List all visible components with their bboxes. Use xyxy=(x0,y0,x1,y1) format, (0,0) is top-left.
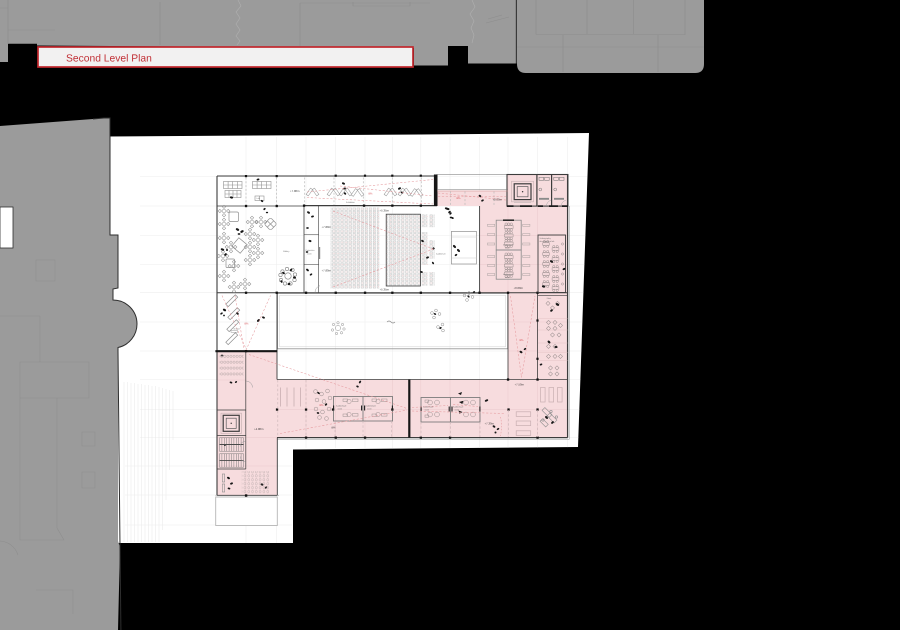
svg-text:+7.50m: +7.50m xyxy=(515,383,525,387)
svg-text:+7.80m: +7.80m xyxy=(322,225,332,229)
svg-text:8%: 8% xyxy=(332,427,336,430)
svg-text:+5.35m: +5.35m xyxy=(380,288,390,292)
svg-text:8%: 8% xyxy=(245,323,249,326)
svg-text:Auditorium: Auditorium xyxy=(436,253,446,256)
svg-text:terrace: terrace xyxy=(234,328,241,331)
svg-text:Audiovisual: Audiovisual xyxy=(453,406,464,409)
svg-text:Audiovisual: Audiovisual xyxy=(366,405,377,408)
svg-text:Projection: Projection xyxy=(306,249,315,252)
svg-text:room: room xyxy=(505,247,510,250)
svg-text:+0.00m: +0.00m xyxy=(514,286,524,290)
svg-text:+5.35m: +5.35m xyxy=(380,209,390,213)
svg-text:+7.80m: +7.80m xyxy=(290,189,300,193)
svg-text:+0.00m: +0.00m xyxy=(493,198,503,202)
svg-text:development lab: development lab xyxy=(540,240,556,243)
svg-text:+7.80m: +7.80m xyxy=(322,269,332,273)
svg-text:Videography: Videography xyxy=(540,237,551,240)
svg-text:8%: 8% xyxy=(320,404,324,407)
svg-text:+7.30m: +7.30m xyxy=(485,422,495,426)
svg-text:Audiovisual: Audiovisual xyxy=(503,244,514,247)
svg-text:room: room xyxy=(505,276,510,279)
svg-text:room: room xyxy=(425,409,430,412)
svg-text:Audiovisual: Audiovisual xyxy=(503,273,514,276)
svg-text:room: room xyxy=(367,408,372,411)
svg-text:8%: 8% xyxy=(369,193,373,196)
svg-text:Audiovisual: Audiovisual xyxy=(336,405,347,408)
svg-text:room: room xyxy=(455,409,460,412)
svg-text:Exhibition: Exhibition xyxy=(346,201,355,204)
svg-text:8%: 8% xyxy=(520,339,524,342)
svg-text:8%: 8% xyxy=(457,197,461,200)
svg-text:+4.80m: +4.80m xyxy=(254,427,264,431)
svg-text:Audiovisual: Audiovisual xyxy=(423,406,434,409)
svg-text:room: room xyxy=(307,253,312,256)
svg-text:Gallery: Gallery xyxy=(283,250,289,253)
svg-text:room: room xyxy=(338,408,343,411)
svg-text:Second Level Plan: Second Level Plan xyxy=(66,54,152,65)
